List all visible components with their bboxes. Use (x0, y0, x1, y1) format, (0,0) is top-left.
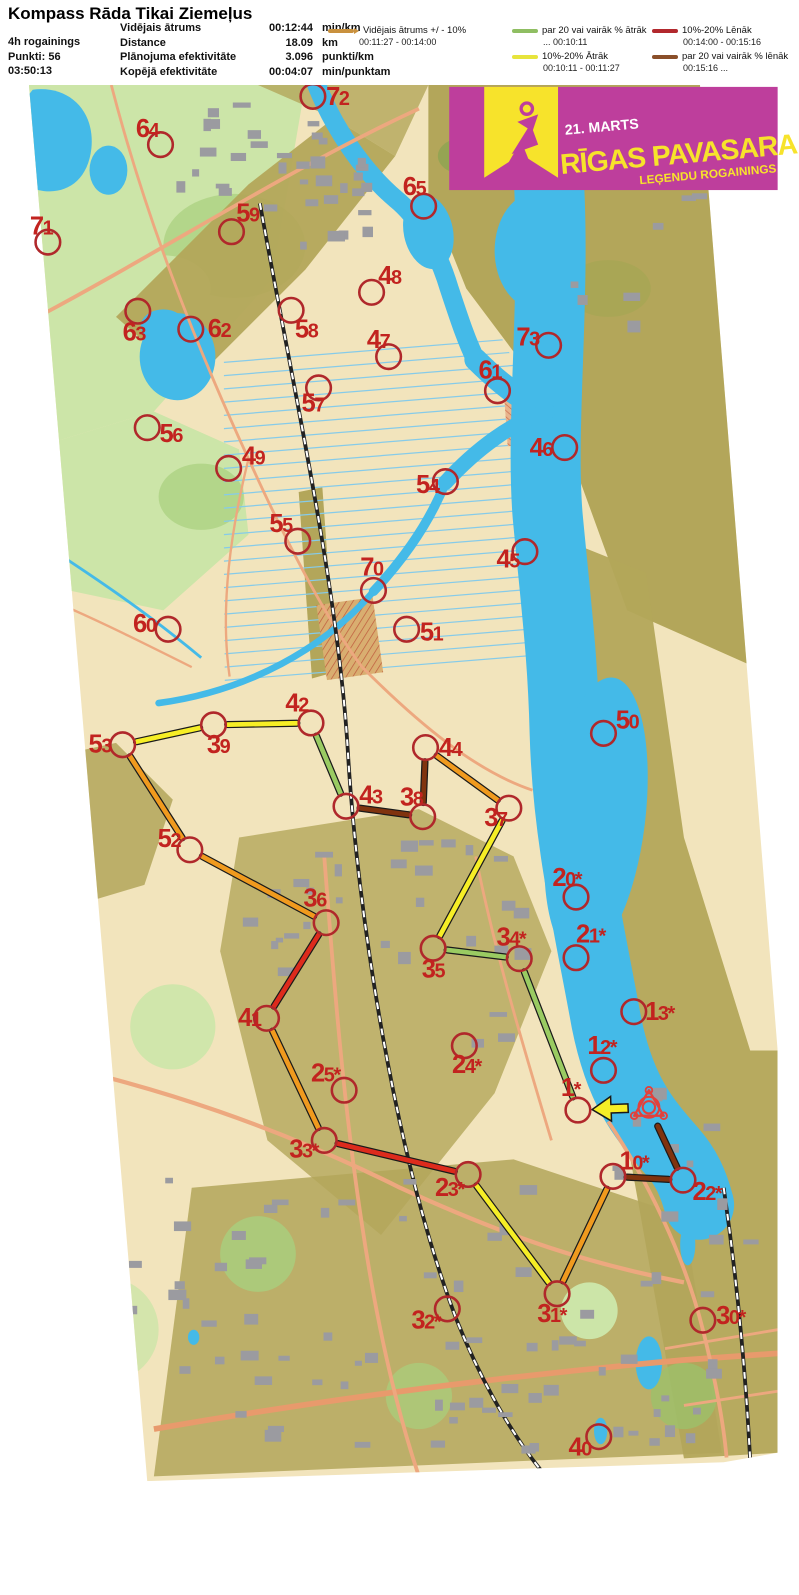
control-label-54: 54 (416, 471, 440, 499)
legend-range: ... 00:10:11 (543, 37, 647, 48)
stat-value: 00:12:44 (255, 21, 313, 36)
event-summary: 4h rogainings Punkti: 56 03:50:13 (8, 35, 80, 79)
legend-label: 10%-20% Lēnāk (682, 25, 752, 36)
route-leg-42-39 (228, 723, 297, 724)
route-leg-10*-22* (627, 1177, 669, 1179)
legend-label: Vidējais ātrums +/ - 10% (363, 25, 466, 36)
control-label-73: 73 (516, 323, 540, 351)
stat-value: 18.09 (255, 36, 313, 51)
control-label-70: 70 (360, 553, 384, 581)
legend-item-faster: 10%-20% Ātrāk 00:10:11 - 00:11:27 (512, 51, 620, 74)
page: Kompass Rāda Tikai Ziemeļus 4h rogaining… (0, 0, 799, 1590)
control-label-36: 36 (303, 885, 327, 913)
legend-range: 00:11:27 - 00:14:00 (359, 37, 466, 48)
stat-label: Distance (120, 36, 255, 51)
event-banner: 21. MARTS RĪGAS PAVASARA LEĢENDU ROGAINI… (449, 87, 799, 194)
stat-label: Vidējais ātrums (120, 21, 255, 36)
points-total: Punkti: 56 (8, 50, 80, 65)
control-label-50: 50 (616, 707, 640, 735)
control-label-35: 35 (422, 956, 446, 984)
control-label-51: 51 (420, 619, 444, 647)
control-label-64: 64 (136, 115, 160, 143)
control-label-20*: 20* (552, 864, 582, 892)
stats-header: Kompass Rāda Tikai Ziemeļus 4h rogaining… (0, 0, 799, 85)
map-container: 7164726559636258484773615756494654554570… (0, 85, 799, 1590)
control-label-42: 42 (285, 690, 309, 718)
control-label-60: 60 (133, 610, 157, 638)
control-label-53: 53 (89, 730, 113, 758)
control-label-59: 59 (236, 199, 260, 227)
control-label-31*: 31* (537, 1300, 567, 1328)
control-label-58: 58 (295, 316, 319, 344)
control-label-32*: 32* (411, 1307, 441, 1335)
control-label-55: 55 (269, 510, 293, 538)
stat-value: 3.096 (255, 50, 313, 65)
legend-item-slower: 10%-20% Lēnāk 00:14:00 - 00:15:16 (652, 25, 761, 48)
legend-label: par 20 vai vairāk % lēnāk (682, 51, 788, 62)
stat-unit: punkti/km (313, 50, 390, 65)
legend-swatch-much-faster (512, 29, 538, 33)
legend-swatch-average (328, 28, 359, 34)
control-label-47: 47 (367, 326, 391, 354)
control-label-45: 45 (497, 546, 521, 574)
legend-swatch-faster (512, 55, 538, 59)
control-label-72: 72 (326, 85, 350, 111)
legend-range: 00:15:16 ... (683, 63, 788, 74)
route-leg-44-38 (423, 762, 425, 803)
control-label-46: 46 (530, 434, 554, 462)
control-label-37: 37 (484, 804, 508, 832)
map: 7164726559636258484773615756494654554570… (0, 85, 799, 1590)
control-label-39: 39 (207, 731, 231, 759)
control-label-48: 48 (378, 262, 402, 290)
control-label-24*: 24* (452, 1051, 482, 1079)
stat-row: Kopējā efektivitāte 00:04:07 min/punktam (120, 65, 390, 80)
stat-label: Kopējā efektivitāte (120, 65, 255, 80)
control-label-25*: 25* (311, 1060, 341, 1088)
legend-label: 10%-20% Ātrāk (542, 51, 608, 62)
control-label-1*: 1* (561, 1074, 582, 1102)
legend-range: 00:10:11 - 00:11:27 (543, 63, 620, 74)
elapsed-time: 03:50:13 (8, 64, 80, 79)
control-label-62: 62 (208, 315, 232, 343)
control-label-22*: 22* (692, 1178, 722, 1206)
control-label-57: 57 (302, 390, 326, 418)
control-label-21*: 21* (576, 921, 606, 949)
control-label-49: 49 (242, 443, 266, 471)
legend-label: par 20 vai vairāk % ātrāk (542, 25, 647, 36)
control-label-10*: 10* (620, 1148, 650, 1176)
stat-row: Plānojuma efektivitāte 3.096 punkti/km (120, 50, 390, 65)
legend-swatch-slower (652, 29, 678, 33)
control-label-13*: 13* (645, 998, 675, 1026)
control-label-33*: 33* (289, 1135, 319, 1163)
stat-value: 00:04:07 (255, 65, 313, 80)
control-label-43: 43 (359, 781, 383, 809)
legend-item-much-faster: par 20 vai vairāk % ātrāk ... 00:10:11 (512, 25, 647, 48)
legend-item-average: Vidējais ātrums +/ - 10% 00:11:27 - 00:1… (328, 25, 466, 48)
control-label-61: 61 (479, 356, 503, 384)
stat-label: Plānojuma efektivitāte (120, 50, 255, 65)
event-format: 4h rogainings (8, 35, 80, 50)
control-label-40: 40 (568, 1434, 592, 1462)
control-label-34*: 34* (497, 923, 527, 951)
stat-unit: min/punktam (313, 65, 390, 80)
control-label-30*: 30* (716, 1302, 746, 1330)
control-label-44: 44 (439, 734, 463, 762)
legend-range: 00:14:00 - 00:15:16 (683, 37, 761, 48)
legend-item-much-slower: par 20 vai vairāk % lēnāk 00:15:16 ... (652, 51, 788, 74)
control-label-12*: 12* (587, 1032, 617, 1060)
legend-swatch-much-slower (652, 55, 678, 59)
control-label-41: 41 (238, 1004, 262, 1032)
control-label-63: 63 (123, 319, 147, 347)
control-label-71: 71 (30, 213, 54, 241)
control-label-56: 56 (160, 420, 184, 448)
control-label-38: 38 (400, 783, 424, 811)
control-label-52: 52 (158, 825, 182, 853)
control-label-23*: 23* (435, 1174, 465, 1202)
control-label-65: 65 (403, 173, 427, 201)
